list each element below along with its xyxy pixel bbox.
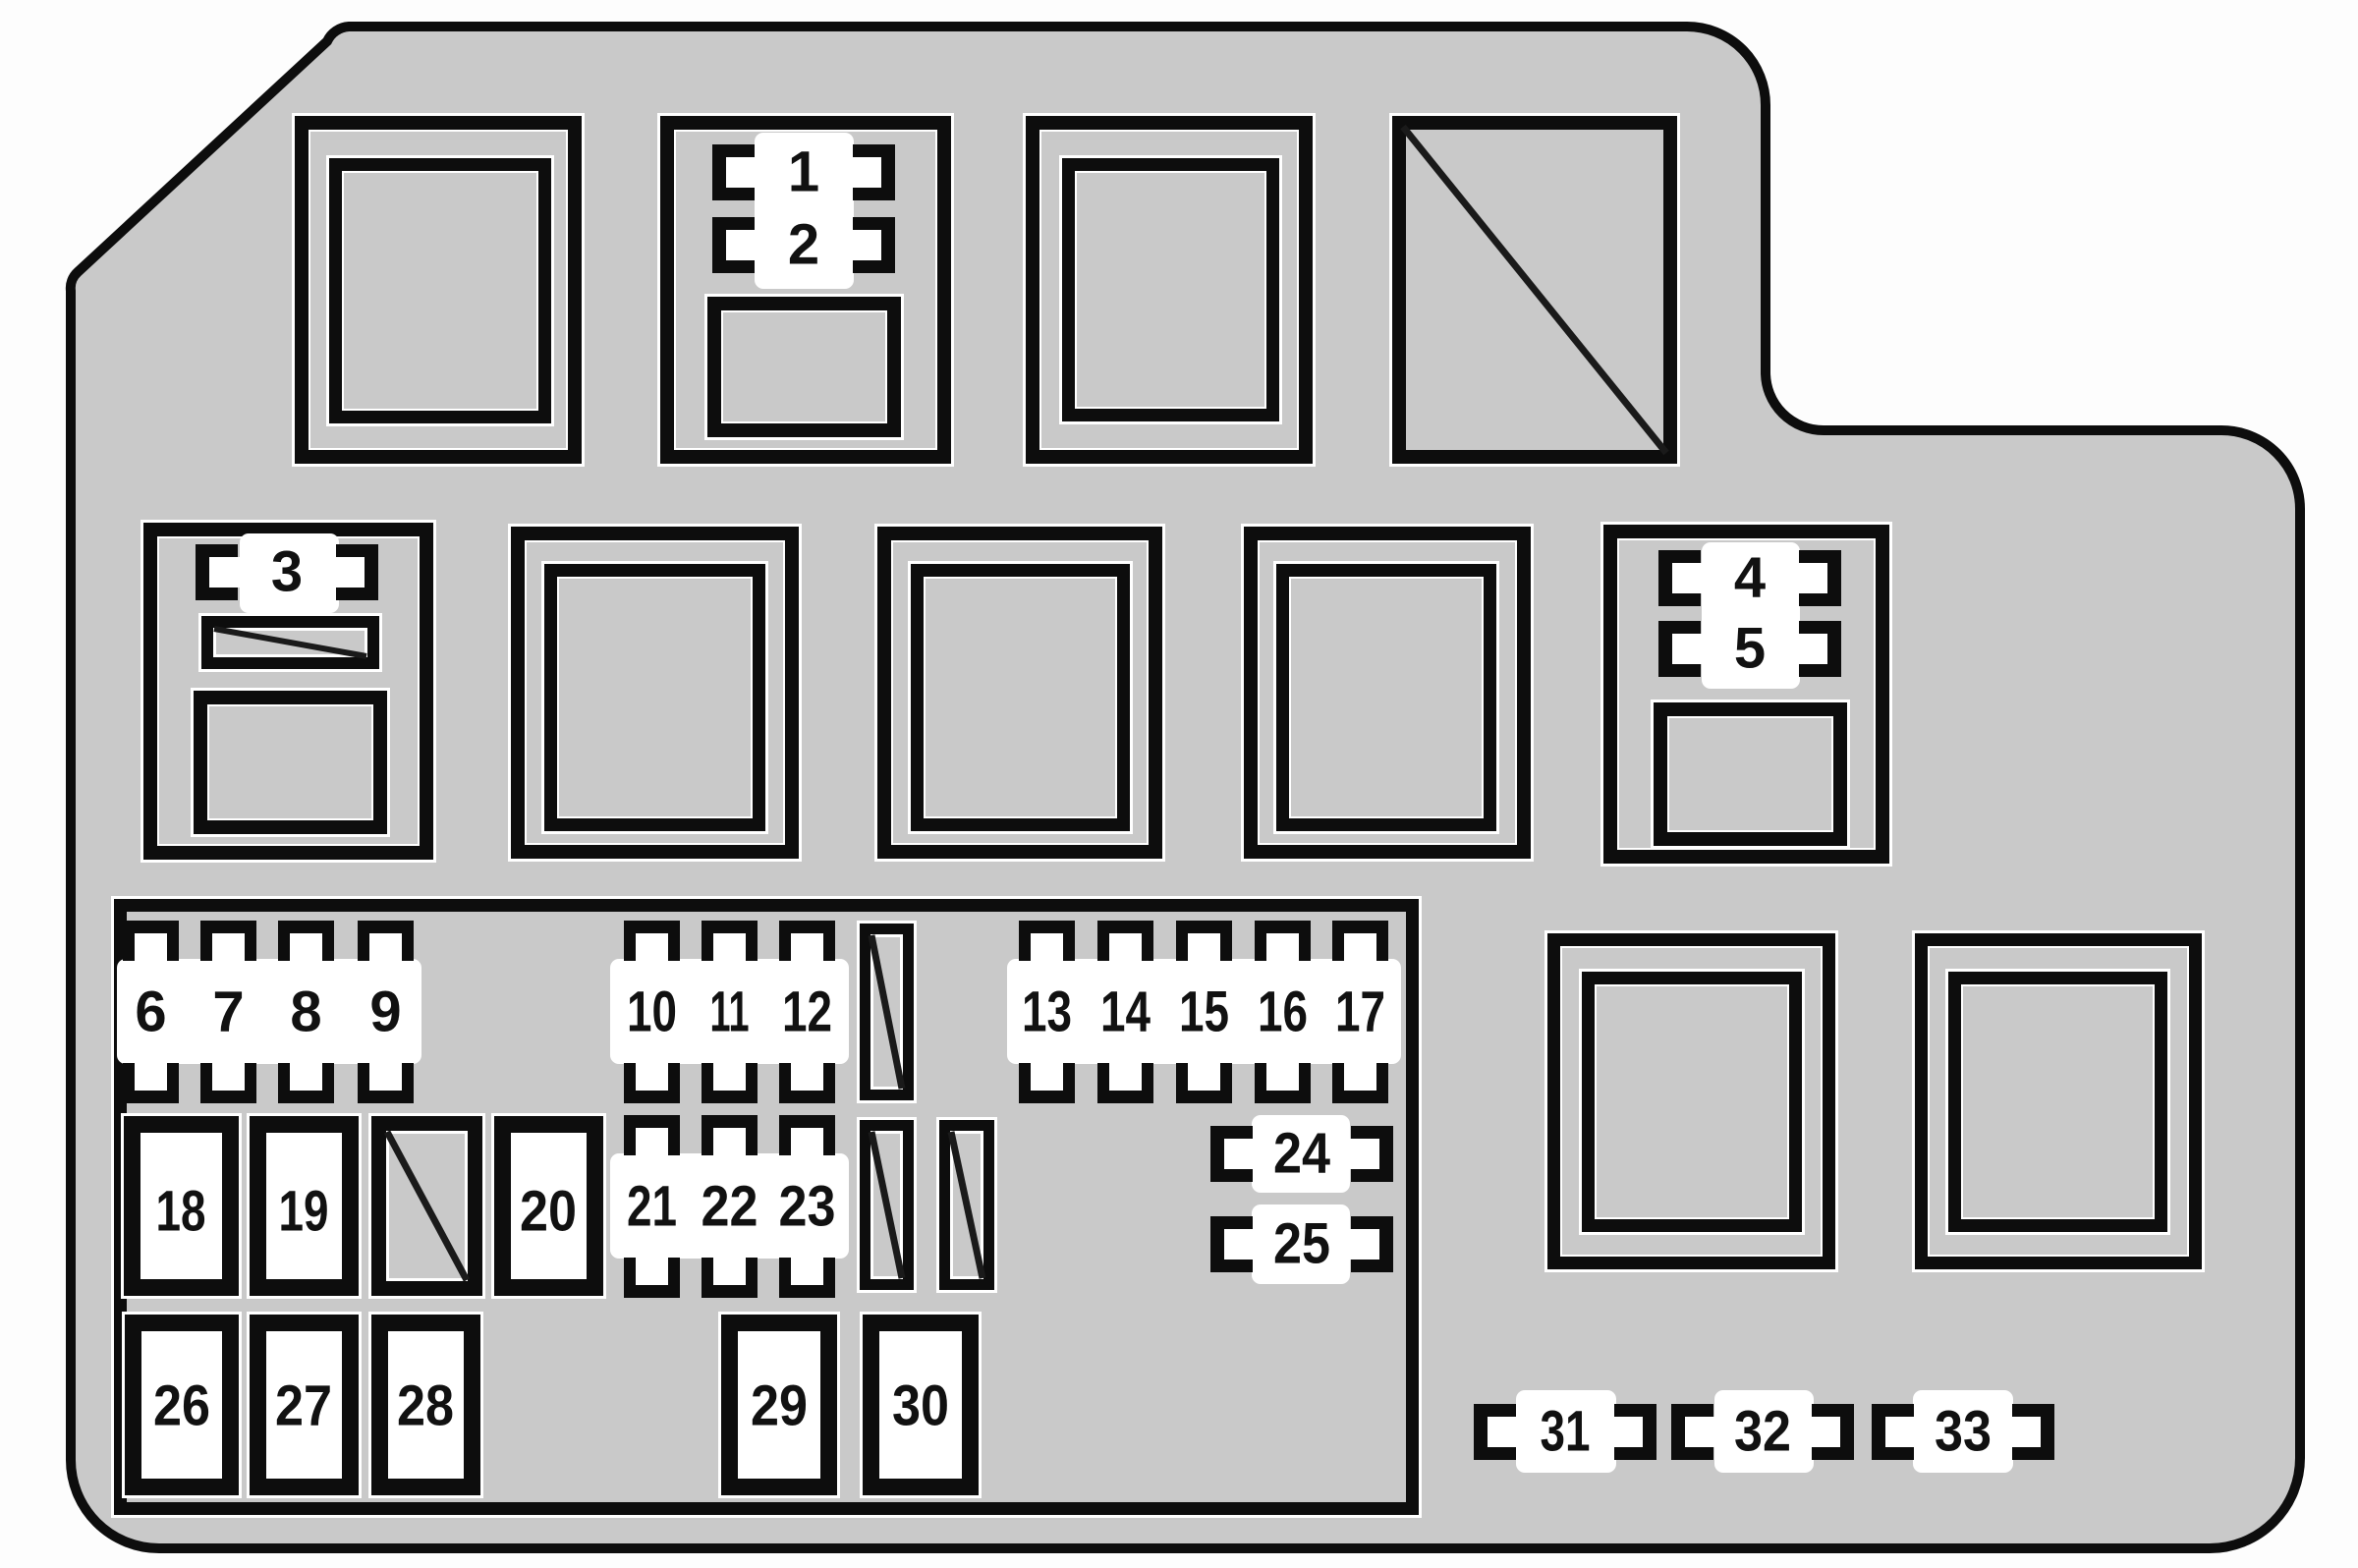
svg-text:20: 20 bbox=[520, 1180, 577, 1244]
svg-text:4: 4 bbox=[1734, 546, 1766, 610]
svg-text:11: 11 bbox=[710, 980, 750, 1044]
svg-text:14: 14 bbox=[1100, 980, 1151, 1044]
svg-text:6: 6 bbox=[135, 980, 166, 1044]
svg-text:25: 25 bbox=[1273, 1212, 1330, 1276]
svg-text:27: 27 bbox=[275, 1374, 332, 1438]
svg-text:5: 5 bbox=[1734, 617, 1766, 681]
svg-text:19: 19 bbox=[279, 1180, 329, 1244]
svg-text:17: 17 bbox=[1335, 980, 1385, 1044]
svg-text:18: 18 bbox=[156, 1180, 206, 1244]
svg-text:12: 12 bbox=[782, 980, 832, 1044]
svg-text:9: 9 bbox=[369, 980, 401, 1044]
svg-text:8: 8 bbox=[290, 980, 321, 1044]
svg-text:16: 16 bbox=[1258, 980, 1308, 1044]
svg-text:1: 1 bbox=[788, 140, 819, 204]
svg-text:3: 3 bbox=[271, 540, 303, 604]
svg-text:13: 13 bbox=[1022, 980, 1072, 1044]
svg-text:29: 29 bbox=[751, 1374, 808, 1438]
svg-text:10: 10 bbox=[627, 980, 677, 1044]
svg-text:23: 23 bbox=[779, 1175, 836, 1239]
svg-text:7: 7 bbox=[212, 980, 244, 1044]
svg-text:31: 31 bbox=[1541, 1400, 1591, 1464]
svg-text:33: 33 bbox=[1935, 1400, 1992, 1464]
svg-text:22: 22 bbox=[702, 1175, 758, 1239]
svg-text:32: 32 bbox=[1734, 1400, 1791, 1464]
svg-text:21: 21 bbox=[627, 1175, 677, 1239]
svg-text:30: 30 bbox=[892, 1374, 949, 1438]
svg-text:28: 28 bbox=[397, 1374, 454, 1438]
svg-text:24: 24 bbox=[1273, 1122, 1330, 1186]
svg-text:26: 26 bbox=[153, 1374, 210, 1438]
svg-text:2: 2 bbox=[788, 213, 819, 277]
svg-text:15: 15 bbox=[1179, 980, 1229, 1044]
